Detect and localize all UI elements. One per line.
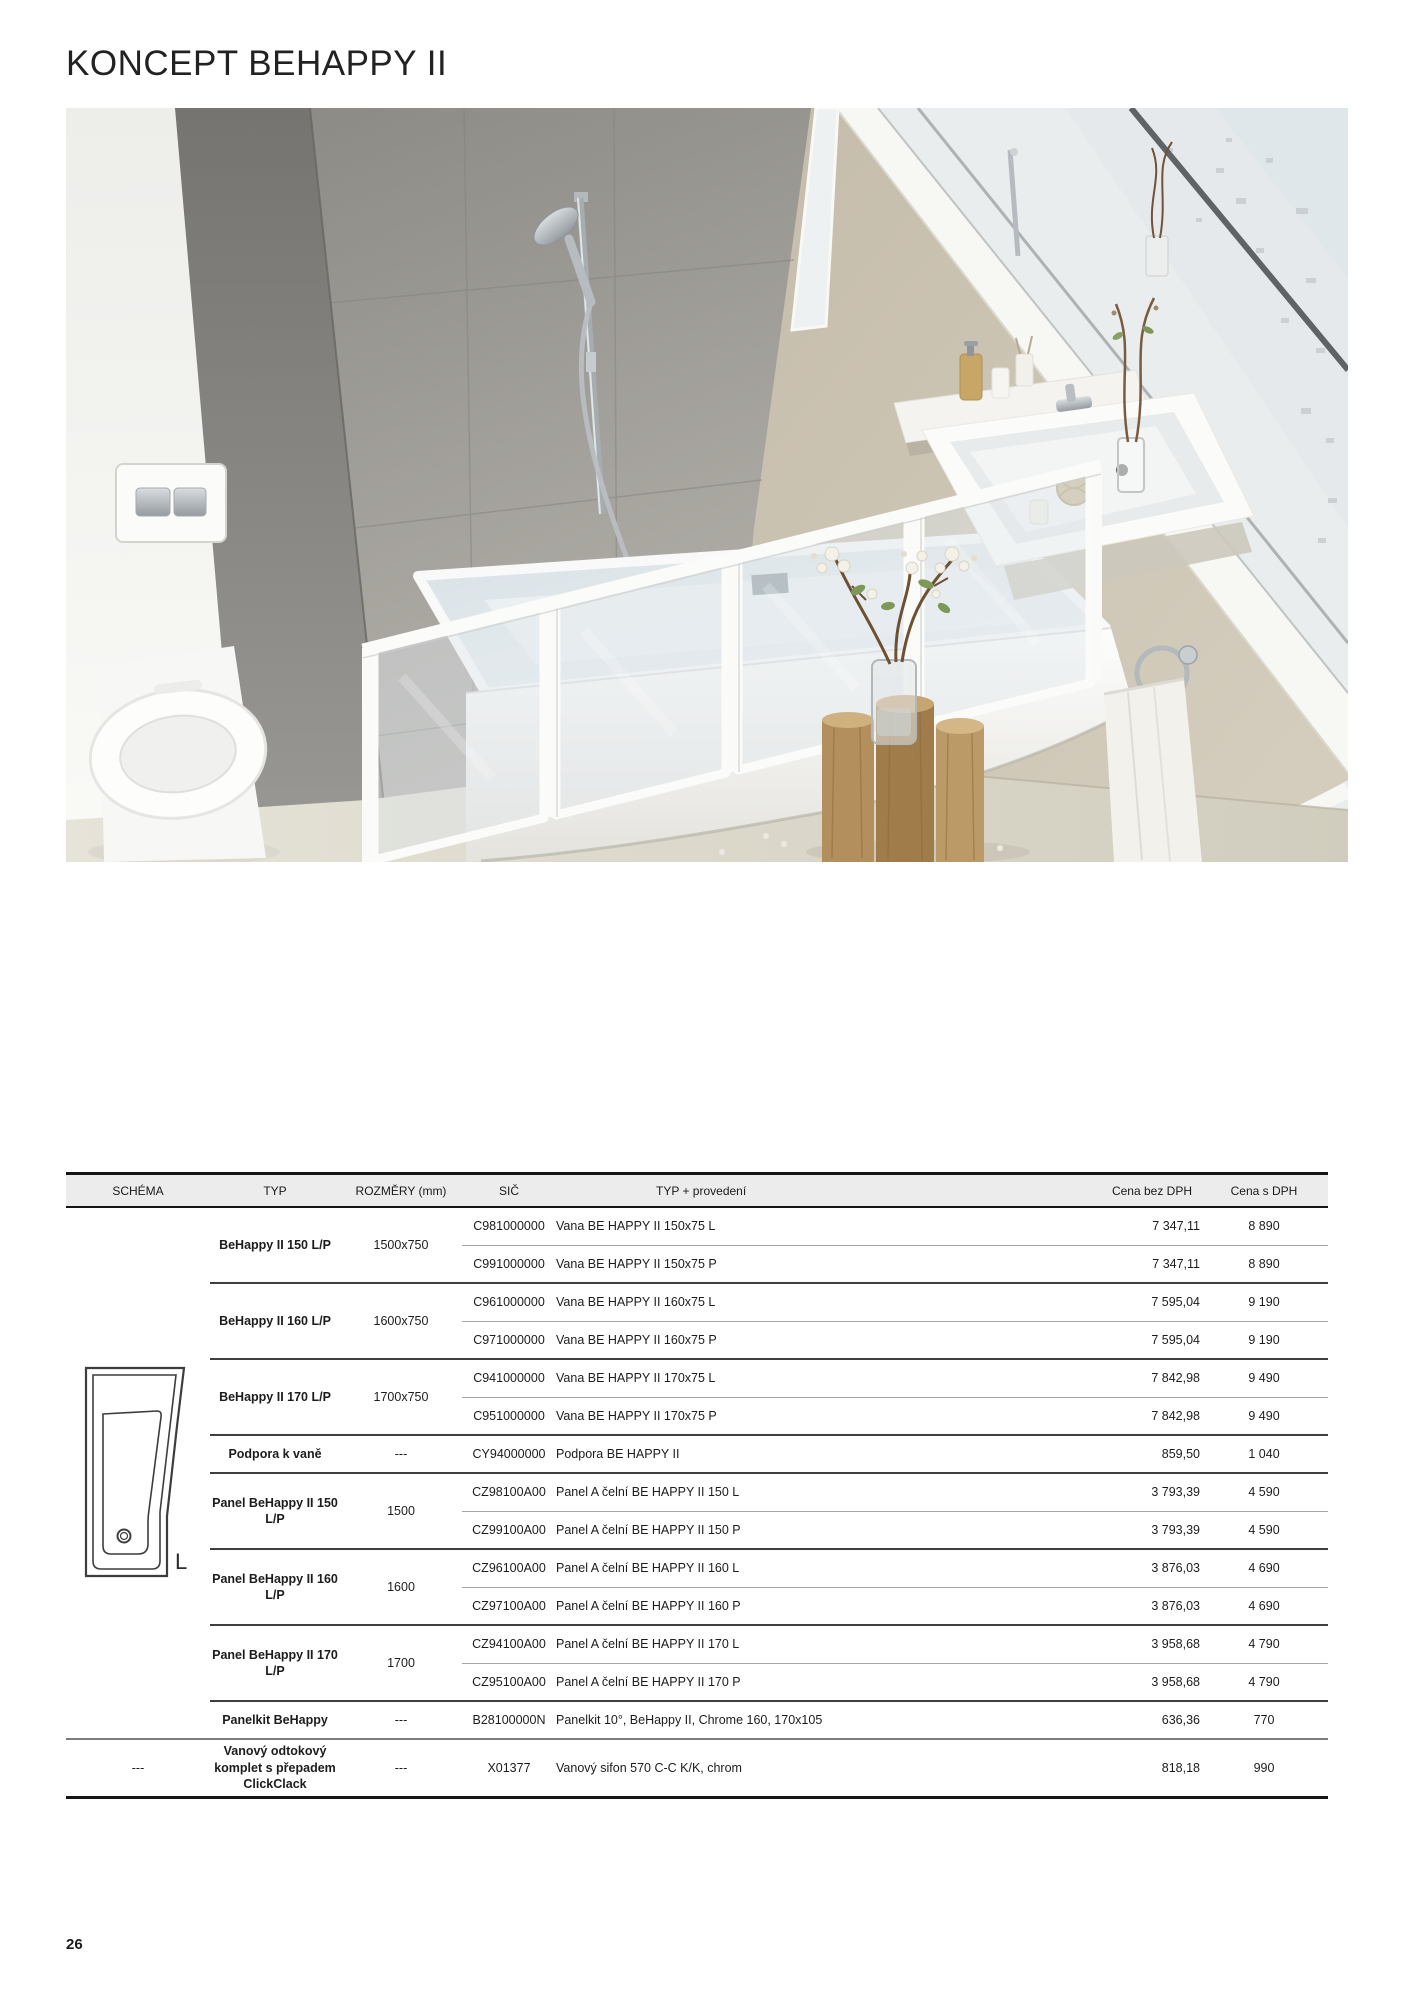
cell-cena-s: 8 890	[1200, 1245, 1328, 1283]
cell-rozmery: ---	[340, 1739, 462, 1797]
table-row: Panel BeHappy II 170 L/P 1700 CZ94100A00…	[66, 1625, 1328, 1663]
cell-desc: Vana BE HAPPY II 170x75 L	[556, 1359, 1040, 1397]
table-row: BeHappy II 160 L/P 1600x750 C961000000 V…	[66, 1283, 1328, 1321]
cell-rozmery: 1700	[340, 1625, 462, 1701]
cell-cena-bez: 7 842,98	[1040, 1359, 1200, 1397]
cell-cena-s: 4 690	[1200, 1549, 1328, 1587]
table-row: L BeHappy II 150 L/P 1500x750 C981000000…	[66, 1207, 1328, 1245]
flush-plate	[116, 464, 226, 542]
cell-rozmery: 1500	[340, 1473, 462, 1549]
table-row: Podpora k vaně --- CY94000000 Podpora BE…	[66, 1435, 1328, 1473]
cell-desc: Vana BE HAPPY II 150x75 P	[556, 1245, 1040, 1283]
cell-rozmery: ---	[340, 1435, 462, 1473]
table-header-row: SCHÉMA TYP ROZMĚRY (mm) SIČ TYP + proved…	[66, 1174, 1328, 1208]
cell-cena-s: 4 590	[1200, 1511, 1328, 1549]
cell-cena-bez: 3 793,39	[1040, 1511, 1200, 1549]
cell-desc: Vana BE HAPPY II 170x75 P	[556, 1397, 1040, 1435]
page-title: KONCEPT BEHAPPY II	[66, 44, 447, 84]
cell-cena-s: 9 490	[1200, 1397, 1328, 1435]
schema-orientation-label: L	[175, 1549, 187, 1574]
cell-desc: Vana BE HAPPY II 160x75 P	[556, 1321, 1040, 1359]
cell-desc: Vana BE HAPPY II 160x75 L	[556, 1283, 1040, 1321]
cell-typ: BeHappy II 150 L/P	[210, 1207, 340, 1283]
cell-sic: C981000000	[462, 1207, 556, 1245]
cell-desc: Panel A čelní BE HAPPY II 160 P	[556, 1587, 1040, 1625]
cell-sic: CZ97100A00	[462, 1587, 556, 1625]
cell-sic: C941000000	[462, 1359, 556, 1397]
cell-cena-s: 990	[1200, 1739, 1328, 1797]
cell-cena-bez: 3 876,03	[1040, 1587, 1200, 1625]
cell-typ: Panel BeHappy II 170 L/P	[210, 1625, 340, 1701]
soap-dispenser	[960, 354, 982, 400]
cell-sic: CZ99100A00	[462, 1511, 556, 1549]
cell-cena-bez: 3 876,03	[1040, 1549, 1200, 1587]
cell-sic: C971000000	[462, 1321, 556, 1359]
header-sic: SIČ	[462, 1174, 556, 1208]
cell-rozmery: 1500x750	[340, 1207, 462, 1283]
cell-cena-s: 8 890	[1200, 1207, 1328, 1245]
cell-cena-s: 1 040	[1200, 1435, 1328, 1473]
cell-desc: Panelkit 10°, BeHappy II, Chrome 160, 17…	[556, 1701, 1040, 1739]
cell-sic: CZ95100A00	[462, 1663, 556, 1701]
cell-cena-bez: 3 793,39	[1040, 1473, 1200, 1511]
header-cena-s: Cena s DPH	[1200, 1174, 1328, 1208]
cell-sic: C961000000	[462, 1283, 556, 1321]
cell-cena-bez: 818,18	[1040, 1739, 1200, 1797]
schema-cell: L	[66, 1207, 210, 1739]
cell-cena-bez: 3 958,68	[1040, 1663, 1200, 1701]
cell-cena-s: 4 690	[1200, 1587, 1328, 1625]
cell-desc: Podpora BE HAPPY II	[556, 1435, 1040, 1473]
header-cena-bez: Cena bez DPH	[1040, 1174, 1200, 1208]
cell-cena-s: 9 190	[1200, 1283, 1328, 1321]
cell-typ: BeHappy II 160 L/P	[210, 1283, 340, 1359]
cell-cena-bez: 7 595,04	[1040, 1283, 1200, 1321]
cell-desc: Vanový sifon 570 C-C K/K, chrom	[556, 1739, 1040, 1797]
bathtub-schematic	[86, 1368, 184, 1576]
cell-sic: C951000000	[462, 1397, 556, 1435]
cell-cena-bez: 7 347,11	[1040, 1245, 1200, 1283]
cell-rozmery: 1600	[340, 1549, 462, 1625]
header-schema: SCHÉMA	[66, 1174, 210, 1208]
cell-typ: Panelkit BeHappy	[210, 1701, 340, 1739]
cell-cena-s: 4 590	[1200, 1473, 1328, 1511]
cell-desc: Panel A čelní BE HAPPY II 170 P	[556, 1663, 1040, 1701]
cell-sic: B28100000N	[462, 1701, 556, 1739]
cell-cena-s: 9 490	[1200, 1359, 1328, 1397]
cell-cena-bez: 7 595,04	[1040, 1321, 1200, 1359]
cell-cena-s: 9 190	[1200, 1321, 1328, 1359]
cell-typ: Podpora k vaně	[210, 1435, 340, 1473]
schema-drawing: L	[66, 1364, 210, 1582]
table-row: Panel BeHappy II 160 L/P 1600 CZ96100A00…	[66, 1549, 1328, 1587]
cell-sic: X01377	[462, 1739, 556, 1797]
table-row: Panel BeHappy II 150 L/P 1500 CZ98100A00…	[66, 1473, 1328, 1511]
header-typ: TYP	[210, 1174, 340, 1208]
table-row: BeHappy II 170 L/P 1700x750 C941000000 V…	[66, 1359, 1328, 1397]
cell-cena-bez: 859,50	[1040, 1435, 1200, 1473]
cell-typ: Panel BeHappy II 150 L/P	[210, 1473, 340, 1549]
cell-desc: Vana BE HAPPY II 150x75 L	[556, 1207, 1040, 1245]
table-row: --- Vanový odtokový komplet s přepadem C…	[66, 1739, 1328, 1797]
cell-typ: Vanový odtokový komplet s přepadem Click…	[210, 1739, 340, 1797]
cell-cena-s: 4 790	[1200, 1663, 1328, 1701]
cell-cena-s: 770	[1200, 1701, 1328, 1739]
cell-cena-bez: 7 347,11	[1040, 1207, 1200, 1245]
page-number: 26	[66, 1936, 83, 1953]
drain-symbol	[118, 1530, 131, 1543]
table-row: Panelkit BeHappy --- B28100000N Panelkit…	[66, 1701, 1328, 1739]
cell-rozmery: 1600x750	[340, 1283, 462, 1359]
cell-sic: CY94000000	[462, 1435, 556, 1473]
cell-cena-bez: 636,36	[1040, 1701, 1200, 1739]
cell-desc: Panel A čelní BE HAPPY II 170 L	[556, 1625, 1040, 1663]
cell-cena-bez: 7 842,98	[1040, 1397, 1200, 1435]
cell-sic: C991000000	[462, 1245, 556, 1283]
cell-desc: Panel A čelní BE HAPPY II 150 P	[556, 1511, 1040, 1549]
cell-cena-bez: 3 958,68	[1040, 1625, 1200, 1663]
cell-schema: ---	[66, 1739, 210, 1797]
cell-typ: BeHappy II 170 L/P	[210, 1359, 340, 1435]
header-rozmery: ROZMĚRY (mm)	[340, 1174, 462, 1208]
cell-sic: CZ98100A00	[462, 1473, 556, 1511]
cell-desc: Panel A čelní BE HAPPY II 160 L	[556, 1549, 1040, 1587]
cell-sic: CZ96100A00	[462, 1549, 556, 1587]
cell-typ: Panel BeHappy II 160 L/P	[210, 1549, 340, 1625]
product-photo	[66, 108, 1348, 862]
cell-rozmery: 1700x750	[340, 1359, 462, 1435]
cell-sic: CZ94100A00	[462, 1625, 556, 1663]
cell-rozmery: ---	[340, 1701, 462, 1739]
product-table: SCHÉMA TYP ROZMĚRY (mm) SIČ TYP + proved…	[66, 1172, 1328, 1799]
header-provedeni: TYP + provedení	[556, 1174, 1040, 1208]
catalog-page: KONCEPT BEHAPPY II	[0, 0, 1414, 2000]
cell-desc: Panel A čelní BE HAPPY II 150 L	[556, 1473, 1040, 1511]
cell-cena-s: 4 790	[1200, 1625, 1328, 1663]
